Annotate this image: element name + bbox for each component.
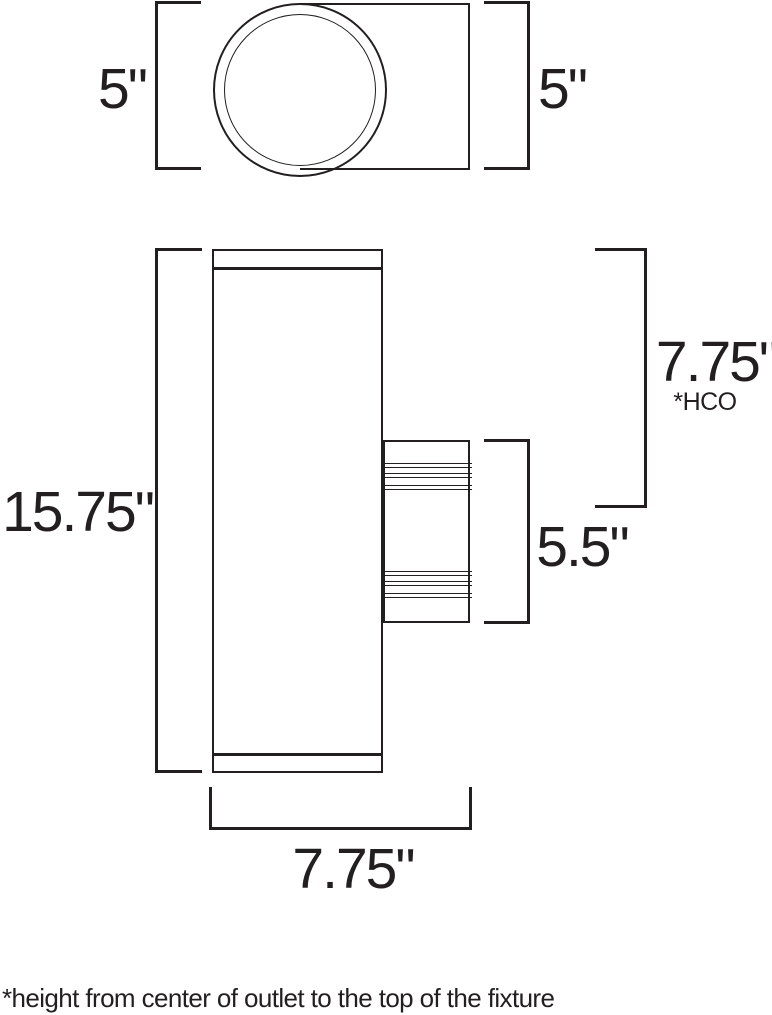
dim-bracket-fixture-depth [209, 787, 472, 830]
dim-bracket-hco-height [595, 248, 647, 508]
dim-bracket-top-width-left [155, 1, 201, 170]
dim-label-fixture-depth: 7.75" [278, 841, 428, 898]
dim-label-top-width-left: 5" [87, 61, 157, 118]
mount-rib [382, 571, 472, 576]
fixture-bottom-cap-line [213, 753, 382, 756]
fixture-body-outline [212, 249, 383, 773]
footnote: *height from center of outlet to the top… [2, 985, 554, 1011]
dim-label-outlet-box-height: 5.5" [517, 519, 647, 576]
dim-label-hco-height: 7.75" [644, 334, 772, 391]
mount-rib [382, 593, 472, 598]
fixture-top-cap-line [213, 267, 382, 270]
mount-rib [382, 485, 472, 490]
dim-bracket-top-width-right [484, 1, 530, 170]
dim-bracket-fixture-height [155, 248, 202, 773]
dim-label-fixture-height: 15.75" [0, 484, 155, 541]
dim-sublabel-hco: *HCO [645, 390, 765, 415]
dim-label-top-width-right: 5" [527, 61, 597, 118]
mount-rib [382, 463, 472, 468]
cylinder-inner-circle [224, 14, 376, 166]
mount-rib [382, 581, 472, 586]
mount-rib [382, 473, 472, 478]
spec-diagram: 5" 5" 15.75" 7.75" *HCO 5.5" 7.75" *heig… [0, 0, 772, 1015]
